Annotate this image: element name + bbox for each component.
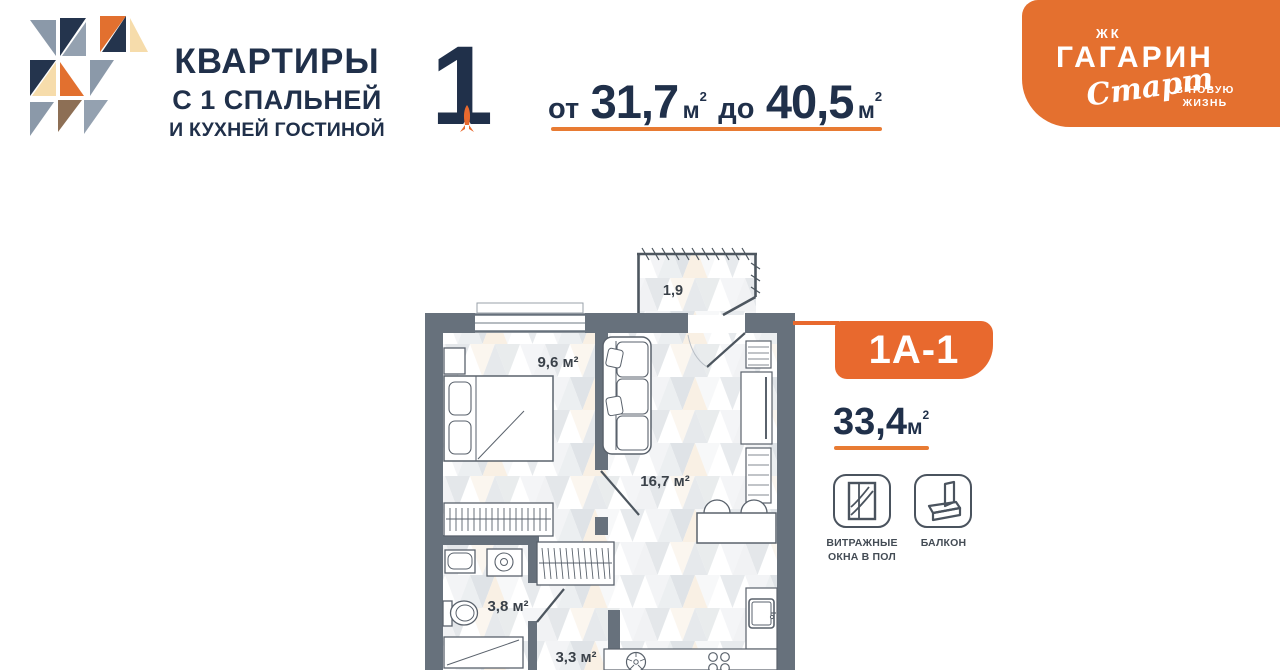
range-underline — [551, 127, 882, 131]
room-label-living: 16,7 м² — [640, 473, 689, 490]
rocket-icon — [456, 100, 478, 136]
room-label-bathroom: 3,8 м² — [487, 598, 528, 615]
range-to-value: 40,5 — [766, 75, 853, 128]
panoramic-window-icon — [842, 479, 882, 523]
range-unit: м — [683, 97, 700, 123]
range-unit2: м — [858, 97, 875, 123]
range-unit-sup: 2 — [700, 89, 707, 104]
range-to-label: до — [718, 93, 754, 125]
tv-unit — [741, 341, 772, 503]
room-label-balcony: 1,9 — [663, 283, 683, 299]
balcony-label: БАЛКОН — [896, 536, 991, 550]
floor-plan: 9,6 м² 16,7 м² 3,8 м² 3,3 м² 1,9 — [420, 245, 800, 670]
bedroom-window — [475, 303, 585, 333]
headline-line1: КВАРТИРЫ — [163, 44, 391, 81]
range-from-label: от — [548, 93, 579, 125]
range-from-value: 31,7 — [591, 75, 678, 128]
panoramic-window-feature — [833, 474, 891, 528]
panoramic-window-label-line2: ОКНА В ПОЛ — [803, 550, 921, 564]
headline: КВАРТИРЫ С 1 СПАЛЬНЕЙ И КУХНЕЙ ГОСТИНОЙ — [163, 44, 391, 141]
bedroom-furniture — [444, 348, 553, 536]
hall-wardrobe — [537, 542, 614, 585]
brand-complex-type: ЖК — [1096, 26, 1122, 41]
sofa — [603, 337, 651, 454]
headline-line2: С 1 СПАЛЬНЕЙ — [163, 86, 391, 114]
room-label-bedroom: 9,6 м² — [537, 354, 578, 371]
brand-tagline-line1: В НОВУЮ — [1172, 84, 1238, 97]
brand-tagline: В НОВУЮ ЖИЗНЬ — [1172, 84, 1238, 110]
unit-code-banner: 1А-1 — [835, 321, 993, 379]
balcony-feature — [914, 474, 972, 528]
area-range: от 31,7 м2 до 40,5 м2 — [548, 74, 882, 129]
banner-connector-line — [793, 321, 839, 325]
brand-badge: ЖК ГАГАРИН Старт В НОВУЮ ЖИЗНЬ — [1022, 0, 1280, 127]
total-area-sup: 2 — [923, 408, 930, 422]
brand-logo-icon — [14, 8, 154, 138]
range-unit-sup2: 2 — [875, 89, 882, 104]
headline-line3: И КУХНЕЙ ГОСТИНОЙ — [163, 120, 391, 140]
balcony-label-line1: БАЛКОН — [896, 536, 991, 550]
total-area-underline — [834, 446, 929, 450]
room-label-hall: 3,3 м² — [555, 649, 596, 666]
total-area-value: 33,4 — [833, 401, 907, 443]
balcony-icon — [923, 478, 963, 524]
brand-tagline-line2: ЖИЗНЬ — [1172, 97, 1238, 110]
total-area: 33,4м2 — [833, 400, 929, 452]
flyer-page: КВАРТИРЫ С 1 СПАЛЬНЕЙ И КУХНЕЙ ГОСТИНОЙ … — [0, 0, 1280, 670]
total-area-unit: м — [907, 416, 923, 439]
